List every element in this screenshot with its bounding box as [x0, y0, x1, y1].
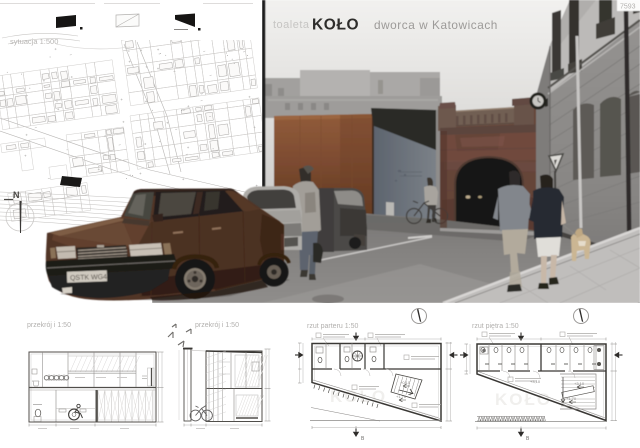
svg-text:przekrój i 1:50: przekrój i 1:50 — [195, 322, 239, 329]
svg-text:KOŁO: KOŁO — [495, 390, 552, 409]
svg-text:N: N — [13, 190, 20, 200]
svg-text:B: B — [526, 436, 530, 442]
svg-text:rzut piętra 1:50: rzut piętra 1:50 — [472, 323, 519, 330]
svg-text:7593: 7593 — [620, 4, 636, 11]
svg-text:sytuacja 1:500: sytuacja 1:500 — [10, 37, 58, 46]
svg-text:+3,10: +3,10 — [574, 381, 585, 386]
svg-text:przekrój i 1:50: przekrój i 1:50 — [27, 322, 71, 329]
svg-text:dworca w Katowicach: dworca w Katowicach — [374, 18, 498, 32]
svg-text:+3,10: +3,10 — [530, 379, 541, 384]
svg-text:toaleta: toaleta — [273, 19, 310, 31]
svg-text:rzut parteru 1:50: rzut parteru 1:50 — [307, 323, 358, 330]
svg-text:KOŁO: KOŁO — [312, 17, 359, 34]
svg-text:QSTK WG4: QSTK WG4 — [70, 274, 107, 282]
svg-text:B: B — [361, 436, 365, 442]
svg-text:+1,70: +1,70 — [566, 396, 577, 401]
